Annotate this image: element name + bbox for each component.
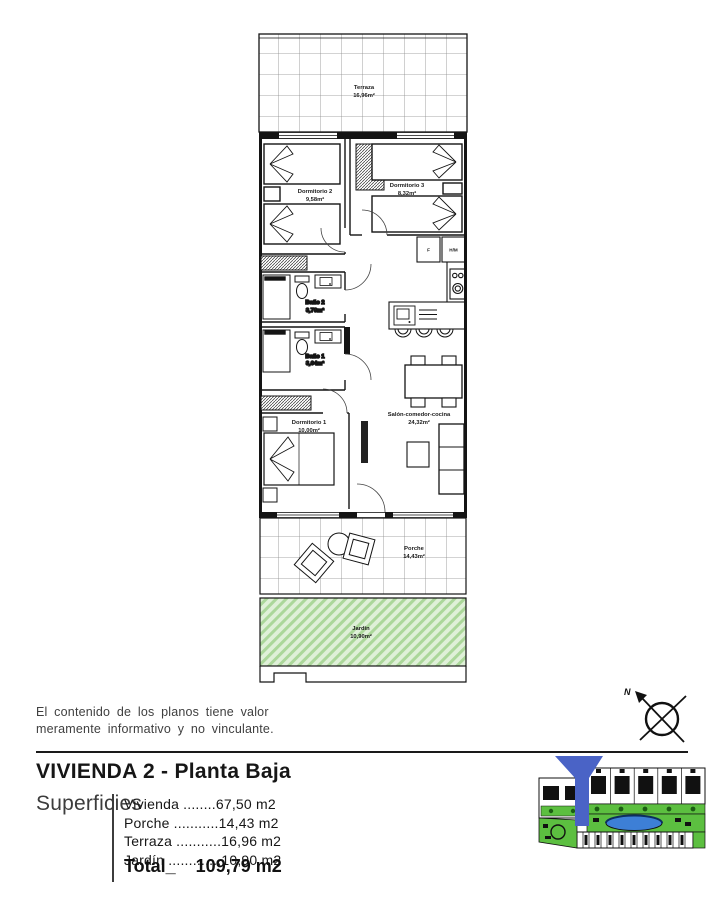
window-icon (279, 133, 337, 138)
wardrobe-icon (261, 396, 311, 410)
wall-bottom (259, 512, 467, 518)
door-opening (357, 513, 385, 517)
dining-table-icon (405, 356, 462, 407)
wall-stub (344, 327, 350, 354)
nightstand-icon (263, 417, 277, 431)
armchair-icon (407, 442, 429, 467)
dormitorio1-area: 10,00m² (298, 427, 320, 434)
vertical-divider (112, 794, 114, 882)
compass-icon: N (618, 682, 702, 754)
jardin-label: Jardín (352, 626, 370, 632)
area-item-terraza: Terraza ...........16,96 m2 (124, 832, 281, 851)
room-dormitorio2: Dormitorio 2 9,58m² (261, 139, 345, 254)
window-icon (397, 133, 454, 138)
bed-icon (264, 204, 340, 244)
stool-icon (395, 329, 453, 337)
room-terraza: Terraza 16,96m² (259, 34, 467, 132)
total-row: Total_ 109,79 m2 (124, 856, 282, 877)
terraza-label: Terraza (354, 85, 375, 91)
washer-label: H/M (449, 248, 458, 253)
shower-icon (263, 330, 290, 372)
site-roundabout-area (539, 818, 577, 848)
disclaimer-line1: El contenido de los planos tiene valor (36, 704, 274, 721)
porche-label: Porche (404, 546, 424, 552)
total-value: 109,79 m2 (196, 856, 282, 877)
area-item-vivienda: Vivienda ........67,50 m2 (124, 795, 281, 814)
separator-line (36, 751, 688, 753)
dormitorio2-area: 9,58m² (306, 196, 324, 203)
toilet-icon (295, 276, 309, 299)
parking-strip (577, 832, 705, 848)
sink-icon (315, 330, 341, 343)
dish-rack-icon (419, 310, 437, 319)
site-green-band (587, 804, 705, 814)
room-porche: Porche 14,43m² (260, 518, 466, 594)
bed-icon (264, 144, 340, 184)
bano2-label: Baño 2 (305, 300, 324, 306)
page-title: VIVIENDA 2 - Planta Baja (36, 760, 291, 784)
total-label: Total_ (124, 856, 176, 877)
room-salon: Salón-comedor-cocina 24,32m² (361, 356, 464, 494)
nightstand-icon (263, 488, 277, 502)
plot-boundary (260, 666, 466, 682)
fridge-label: F (427, 248, 430, 253)
pool-area (587, 814, 705, 832)
disclaimer-line2: meramente informativo y no vinculante. (36, 721, 274, 738)
kitchen: F H/M (389, 237, 466, 337)
nightstand-icon (264, 187, 280, 201)
bano1-area: 3,64m² (306, 360, 324, 367)
dormitorio2-label: Dormitorio 2 (298, 189, 332, 195)
jardin-area: 10,90m² (350, 633, 372, 640)
north-label: N (624, 687, 631, 697)
double-bed-icon (264, 433, 334, 485)
floor-plan: Terraza 16,96m² (257, 32, 469, 684)
kitchen-sink-icon (394, 306, 415, 325)
toilet-icon (295, 332, 309, 355)
dormitorio1-label: Dormitorio 1 (292, 420, 327, 426)
wall-top (259, 132, 467, 139)
terraza-area: 16,96m² (353, 92, 375, 99)
porche-area: 14,43m² (403, 553, 425, 560)
salon-label: Salón-comedor-cocina (388, 412, 451, 418)
window-icon (393, 513, 453, 517)
room-bano2: Baño 2 3,78m² (261, 272, 345, 322)
salon-area: 24,32m² (408, 419, 430, 426)
area-item-porche: Porche ...........14,43 m2 (124, 814, 281, 833)
bano1-label: Baño 1 (305, 354, 325, 360)
dormitorio3-label: Dormitorio 3 (390, 183, 425, 189)
hob-icon (450, 269, 465, 299)
room-bano1: Baño 1 3,64m² (261, 327, 350, 390)
bano2-area: 3,78m² (306, 307, 324, 314)
site-plan-thumbnail (537, 756, 709, 852)
room-dormitorio1: Dormitorio 1 10,00m² (261, 413, 349, 509)
bed-icon (372, 144, 462, 180)
nightstand-icon (443, 183, 462, 194)
page: Terraza 16,96m² (0, 0, 722, 900)
sofa-icon (439, 424, 464, 494)
dormitorio3-area: 8,32m² (398, 190, 416, 197)
room-jardin: Jardín 10,90m² (260, 598, 466, 682)
site-units-row (587, 768, 705, 804)
tv-sideboard-icon (361, 421, 368, 463)
shower-icon (263, 275, 290, 319)
sink-icon (315, 275, 341, 288)
window-icon (277, 513, 339, 517)
disclaimer: El contenido de los planos tiene valor m… (36, 704, 274, 738)
wardrobe-icon (261, 256, 307, 270)
